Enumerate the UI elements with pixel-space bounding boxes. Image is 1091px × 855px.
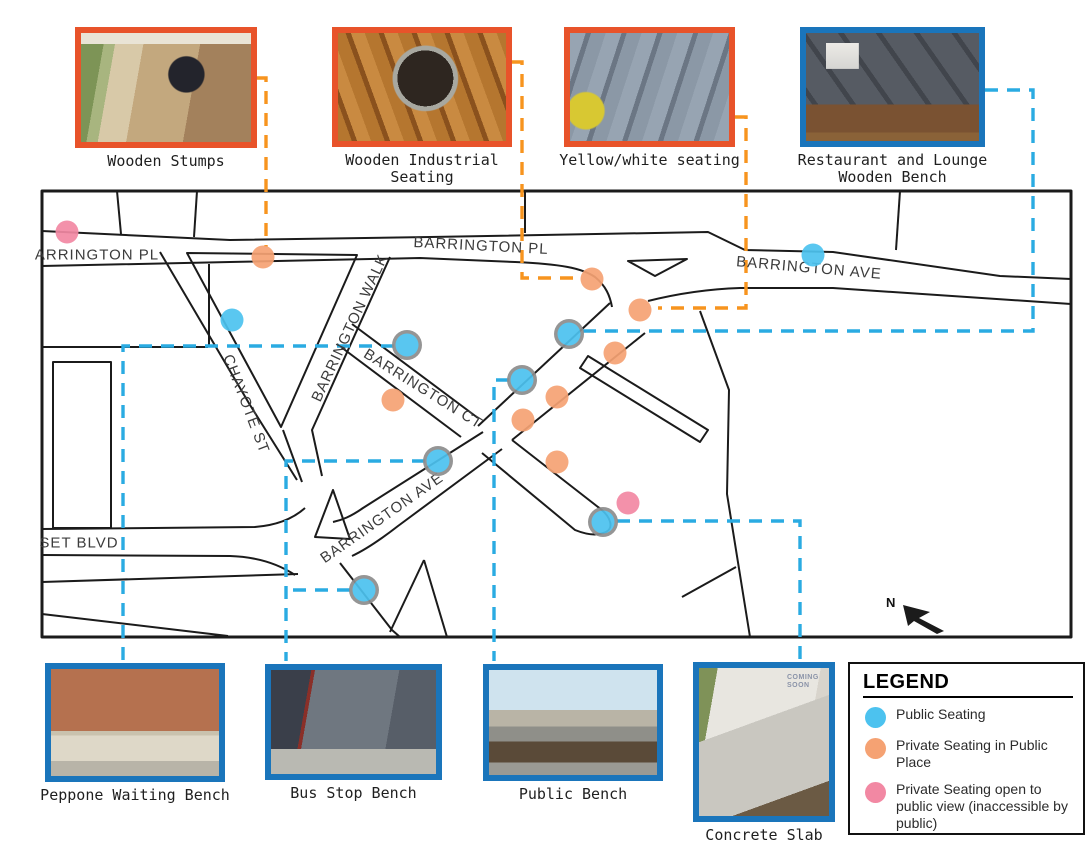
seat-dot-orange bbox=[512, 409, 535, 432]
photo-public-bench: Public Bench bbox=[483, 664, 663, 803]
seat-dot-orange bbox=[629, 299, 652, 322]
coming-soon-sign: COMING SOON bbox=[787, 674, 821, 689]
legend-item-label: Public Seating bbox=[896, 706, 986, 723]
legend-item-private-seating-public-place: Private Seating in Public Place bbox=[863, 737, 1073, 772]
legend-item-private-seating-public-view: Private Seating open to public view (ina… bbox=[863, 781, 1073, 833]
peppone-image bbox=[45, 663, 225, 782]
concrete-slab-image: COMING SOON bbox=[693, 662, 835, 822]
photo-peppone-waiting-bench: Peppone Waiting Bench bbox=[45, 663, 225, 804]
seat-dot-orange bbox=[546, 451, 569, 474]
photo-caption: Restaurant and Lounge Wooden Bench bbox=[782, 152, 1003, 187]
private-view-dot-icon bbox=[865, 782, 886, 803]
wooden-industrial-image bbox=[332, 27, 512, 147]
photo-caption: Wooden Stumps bbox=[57, 153, 275, 170]
seat-dot-blue bbox=[592, 511, 615, 534]
seating-map-infographic: N ARRINGTON PLBARRINGTON PLBARRINGTON AV… bbox=[0, 0, 1091, 855]
photo-caption: Bus Stop Bench bbox=[247, 785, 460, 802]
photo-caption: Peppone Waiting Bench bbox=[27, 787, 243, 804]
seat-dot-blue bbox=[802, 244, 825, 267]
seat-dot-blue bbox=[221, 309, 244, 332]
bus-stop-image bbox=[265, 664, 442, 780]
seat-dot-blue bbox=[558, 323, 581, 346]
seat-dot-pink bbox=[56, 221, 79, 244]
street-network bbox=[42, 191, 1071, 637]
photo-restaurant-lounge-bench: Restaurant and Lounge Wooden Bench bbox=[800, 27, 985, 187]
connector-public-bench bbox=[494, 380, 509, 661]
street-label-arrington-pl: ARRINGTON PL bbox=[35, 247, 159, 264]
seat-dot-orange bbox=[252, 246, 275, 269]
seat-dot-orange bbox=[604, 342, 627, 365]
north-label: N bbox=[886, 595, 895, 610]
seat-dot-blue bbox=[427, 450, 450, 473]
seat-dot-blue bbox=[396, 334, 419, 357]
public-bench-image bbox=[483, 664, 663, 781]
seat-dot-orange bbox=[546, 386, 569, 409]
seat-dot-blue bbox=[511, 369, 534, 392]
seat-dot-orange bbox=[382, 389, 405, 412]
map-border bbox=[42, 191, 1071, 637]
photo-concrete-slab: COMING SOON Concrete Slab bbox=[693, 662, 835, 844]
photo-caption: Wooden Industrial Seating bbox=[314, 152, 530, 187]
legend-divider bbox=[863, 696, 1073, 698]
seat-dot-orange bbox=[581, 268, 604, 291]
photo-caption: Yellow/white seating bbox=[546, 152, 753, 169]
wooden-stumps-image bbox=[75, 27, 257, 148]
photo-wooden-industrial-seating: Wooden Industrial Seating bbox=[332, 27, 512, 187]
north-arrow-icon bbox=[903, 605, 944, 634]
photo-caption: Public Bench bbox=[465, 786, 681, 803]
photo-bus-stop-bench: Bus Stop Bench bbox=[265, 664, 442, 802]
legend-item-label: Private Seating open to public view (ina… bbox=[896, 781, 1073, 833]
street-label-set-blvd: SET BLVD bbox=[39, 535, 118, 552]
private-seating-dot-icon bbox=[865, 738, 886, 759]
legend-title: LEGEND bbox=[863, 671, 1073, 694]
photo-yellow-white-seating: Yellow/white seating bbox=[564, 27, 735, 169]
public-seating-dot-icon bbox=[865, 707, 886, 728]
legend-item-public-seating: Public Seating bbox=[863, 706, 1073, 728]
seat-dot-pink bbox=[617, 492, 640, 515]
photo-caption: Concrete Slab bbox=[675, 827, 853, 844]
legend-item-label: Private Seating in Public Place bbox=[896, 737, 1073, 772]
seat-dot-blue bbox=[353, 579, 376, 602]
connector-peppone bbox=[123, 346, 394, 660]
legend: LEGEND Public Seating Private Seating in… bbox=[848, 662, 1085, 835]
restaurant-lounge-image bbox=[800, 27, 985, 147]
yellow-white-image bbox=[564, 27, 735, 147]
photo-wooden-stumps: Wooden Stumps bbox=[75, 27, 257, 170]
